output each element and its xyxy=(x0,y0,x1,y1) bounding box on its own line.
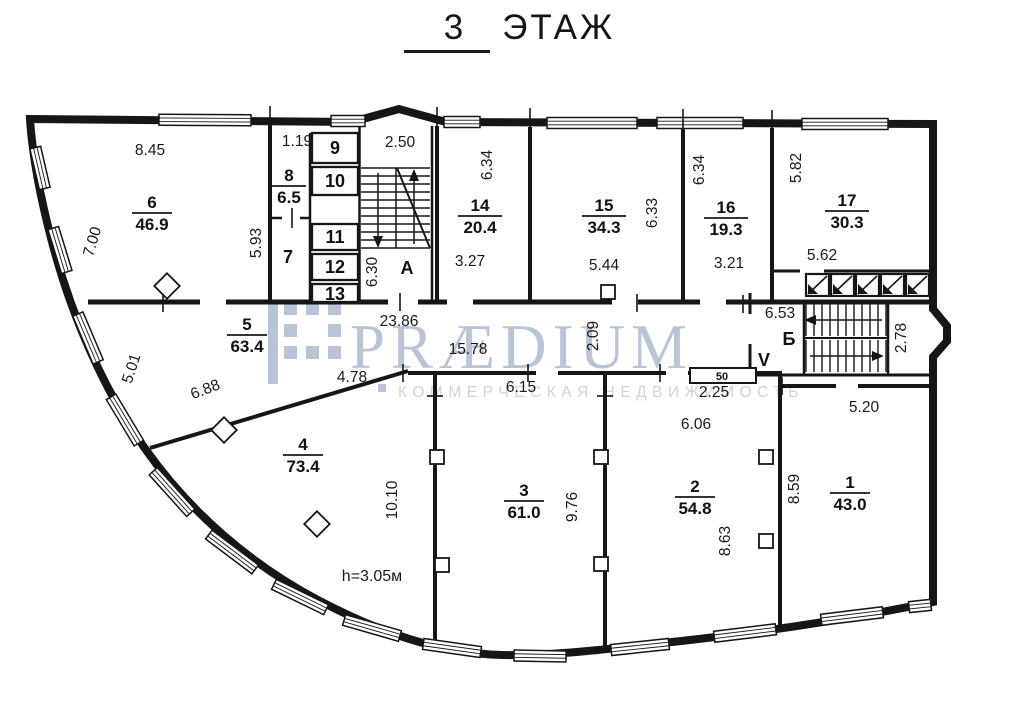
room-label-4: 4 73.4 xyxy=(283,435,323,476)
room-label-15: 15 34.3 xyxy=(582,196,626,237)
room-area: 46.9 xyxy=(135,215,168,234)
room-area: 73.4 xyxy=(286,457,320,476)
dim-8.63: 8.63 xyxy=(717,526,734,556)
room-number: 8 xyxy=(284,166,293,185)
room-area: 54.8 xyxy=(678,499,711,518)
dim-6.15: 6.15 xyxy=(506,379,536,396)
outer-wall xyxy=(30,109,947,655)
dim-8.59: 8.59 xyxy=(786,474,803,504)
cabin-10: 10 xyxy=(325,171,345,191)
dim-5.93: 5.93 xyxy=(248,228,265,258)
dim-10.10: 10.10 xyxy=(384,480,401,519)
vent-label: V xyxy=(758,350,770,370)
room-number: 1 xyxy=(845,473,854,492)
dim-15.78: 15.78 xyxy=(449,341,488,358)
room-area: 34.3 xyxy=(587,218,620,237)
room-number: 14 xyxy=(471,196,490,215)
dim-6.88: 6.88 xyxy=(188,376,222,403)
dim-5.44: 5.44 xyxy=(589,257,620,274)
room-number: 17 xyxy=(838,191,857,210)
floor-plan-drawing: PRÆDIUM КОММЕРЧЕСКАЯ НЕДВИЖИМОСТЬ xyxy=(0,0,1019,712)
room-area: 61.0 xyxy=(507,503,540,522)
dim-2.09: 2.09 xyxy=(585,321,602,351)
stair-a-down-arrow xyxy=(373,236,383,248)
watermark-subtitle: КОММЕРЧЕСКАЯ НЕДВИЖИМОСТЬ xyxy=(398,384,804,401)
dim-23.86: 23.86 xyxy=(380,313,419,330)
shaft-hatch-row xyxy=(806,274,929,296)
shaft-box: 50 xyxy=(690,368,756,383)
dim-7.00: 7.00 xyxy=(80,224,105,258)
dim-2.50: 2.50 xyxy=(385,134,416,151)
dim-6.53: 6.53 xyxy=(765,305,795,322)
room-number: 16 xyxy=(717,198,736,217)
dim-8.45: 8.45 xyxy=(135,142,165,159)
dim-6.33: 6.33 xyxy=(644,198,661,228)
room-number: 6 xyxy=(147,193,156,212)
floor-plan-page: 3ЭТАЖ PRÆDIUM КОММЕРЧЕСКАЯ НЕДВИЖИМОСТЬ xyxy=(0,0,1019,712)
watermark-logo-bar xyxy=(268,302,278,384)
room-label-1: 1 43.0 xyxy=(830,473,870,514)
room-label-5: 5 63.4 xyxy=(227,315,267,356)
room-label-8: 8 6.5 xyxy=(272,166,306,207)
room-number: 4 xyxy=(298,435,308,454)
dim-5.01: 5.01 xyxy=(119,352,144,386)
stair-a-label: А xyxy=(401,258,414,278)
dim-4.78: 4.78 xyxy=(337,369,367,386)
watermark-bullet xyxy=(378,384,386,392)
stair-b-label: Б xyxy=(783,329,796,349)
stairwell-a xyxy=(361,168,430,248)
dim-5.20: 5.20 xyxy=(849,399,880,416)
dim-6.34-r14: 6.34 xyxy=(479,150,496,181)
room-area: 20.4 xyxy=(463,218,497,237)
room-area: 6.5 xyxy=(277,188,301,207)
room-label-17: 17 30.3 xyxy=(825,191,869,232)
room-number: 3 xyxy=(519,481,528,500)
room-number: 2 xyxy=(690,477,699,496)
ceiling-height-note: h=3.05м xyxy=(342,568,402,585)
cabin-9: 9 xyxy=(330,138,340,158)
room-label-6: 6 46.9 xyxy=(132,193,172,234)
stair-a-up-arrow xyxy=(409,169,419,181)
shaft-label: 50 xyxy=(716,371,728,383)
room-area: 43.0 xyxy=(833,495,866,514)
room-number: 15 xyxy=(595,196,614,215)
dim-2.25: 2.25 xyxy=(699,384,729,401)
dim-1.19: 1.19 xyxy=(282,133,312,150)
dim-5.82: 5.82 xyxy=(788,153,805,183)
watermark-logo-dots xyxy=(284,302,341,359)
dim-2.78: 2.78 xyxy=(893,323,910,353)
cabin-7: 7 xyxy=(283,247,293,267)
room-area: 30.3 xyxy=(830,213,863,232)
dim-6.06: 6.06 xyxy=(681,416,711,433)
cabin-11: 11 xyxy=(325,227,344,247)
dim-3.27: 3.27 xyxy=(455,253,485,270)
dim-9.76: 9.76 xyxy=(564,492,581,522)
cabin-12: 12 xyxy=(325,257,345,277)
room-number: 5 xyxy=(242,315,251,334)
cabin-13: 13 xyxy=(325,284,345,304)
room-label-16: 16 19.3 xyxy=(704,198,748,239)
room-label-2: 2 54.8 xyxy=(675,477,715,518)
room-area: 19.3 xyxy=(709,220,742,239)
room-label-3: 3 61.0 xyxy=(504,481,544,522)
room-label-14: 14 20.4 xyxy=(458,196,502,237)
dim-3.21: 3.21 xyxy=(714,255,744,272)
dim-6.34-r16: 6.34 xyxy=(691,155,708,186)
stairwell-b xyxy=(804,304,888,372)
room-area: 63.4 xyxy=(230,337,264,356)
dim-6.30: 6.30 xyxy=(364,257,381,288)
dim-5.62: 5.62 xyxy=(807,247,837,264)
